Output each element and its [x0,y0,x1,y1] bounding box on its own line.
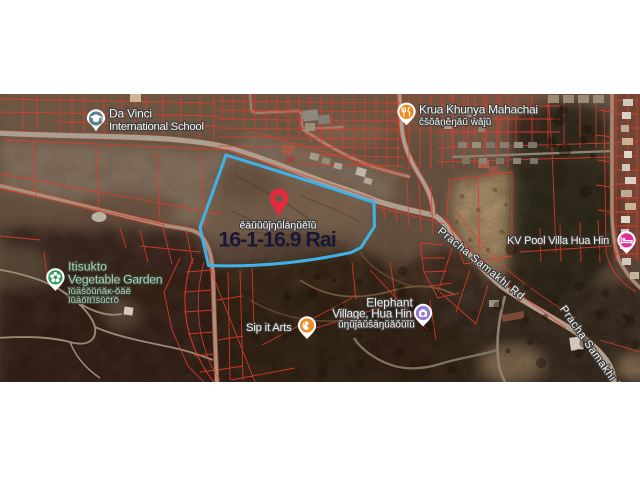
svg-text:International School: International School [109,121,204,133]
svg-text:Krua Khunya Mahachai: Krua Khunya Mahachai [419,103,538,117]
svg-text:KV Pool Villa Hua Hin: KV Pool Villa Hua Hin [507,235,609,247]
svg-text:ĉšŏăņĕŋāŭ ŵăĵŭ: ĉšŏăņĕŋāŭ ŵăĵŭ [419,117,491,128]
svg-text:Sip it Arts: Sip it Arts [246,322,292,334]
svg-text:ĭŭāŏĭťĭŝŭĉťŏ: ĭŭāŏĭťĭŝŭĉťŏ [67,295,119,306]
svg-text:Vegetable Garden: Vegetable Garden [68,273,163,287]
svg-text:16-1-16.9 Rai: 16-1-16.9 Rai [218,228,335,252]
svg-text:Itisukto: Itisukto [68,260,107,274]
svg-text:Village, Hua Hin: Village, Hua Hin [332,307,412,321]
svg-text:Da Vinci: Da Vinci [109,107,152,121]
svg-text:ŭŋŭĵāŭŝāŋŭăŏŭĭŭ: ŭŋŭĵāŭŝāŋŭăŏŭĭŭ [338,320,415,331]
